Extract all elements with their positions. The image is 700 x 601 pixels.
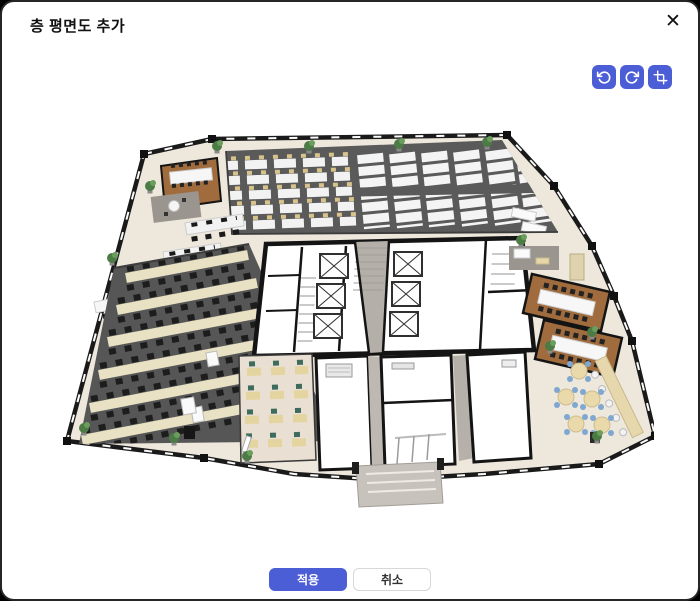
core-area xyxy=(254,238,534,356)
add-floor-plan-dialog: 층 평면도 추가 ✕ xyxy=(0,0,700,601)
training-room xyxy=(239,354,316,463)
cancel-button[interactable]: 취소 xyxy=(353,568,431,591)
rotate-right-button[interactable] xyxy=(620,65,644,89)
top-office-area xyxy=(216,140,559,235)
dialog-title: 층 평면도 추가 xyxy=(30,15,125,36)
entrance-ramp xyxy=(352,458,444,507)
dialog-footer: 적용 취소 xyxy=(2,568,698,591)
apply-button[interactable]: 적용 xyxy=(269,568,347,591)
crop-icon xyxy=(653,70,668,85)
floor-plan-image xyxy=(54,106,654,511)
restroom-area xyxy=(316,352,531,470)
image-toolbar xyxy=(592,65,672,89)
rotate-left-button[interactable] xyxy=(592,65,616,89)
rotate-cw-icon xyxy=(624,69,640,85)
crop-button[interactable] xyxy=(648,65,672,89)
rotate-ccw-icon xyxy=(596,69,612,85)
close-icon[interactable]: ✕ xyxy=(659,8,687,36)
